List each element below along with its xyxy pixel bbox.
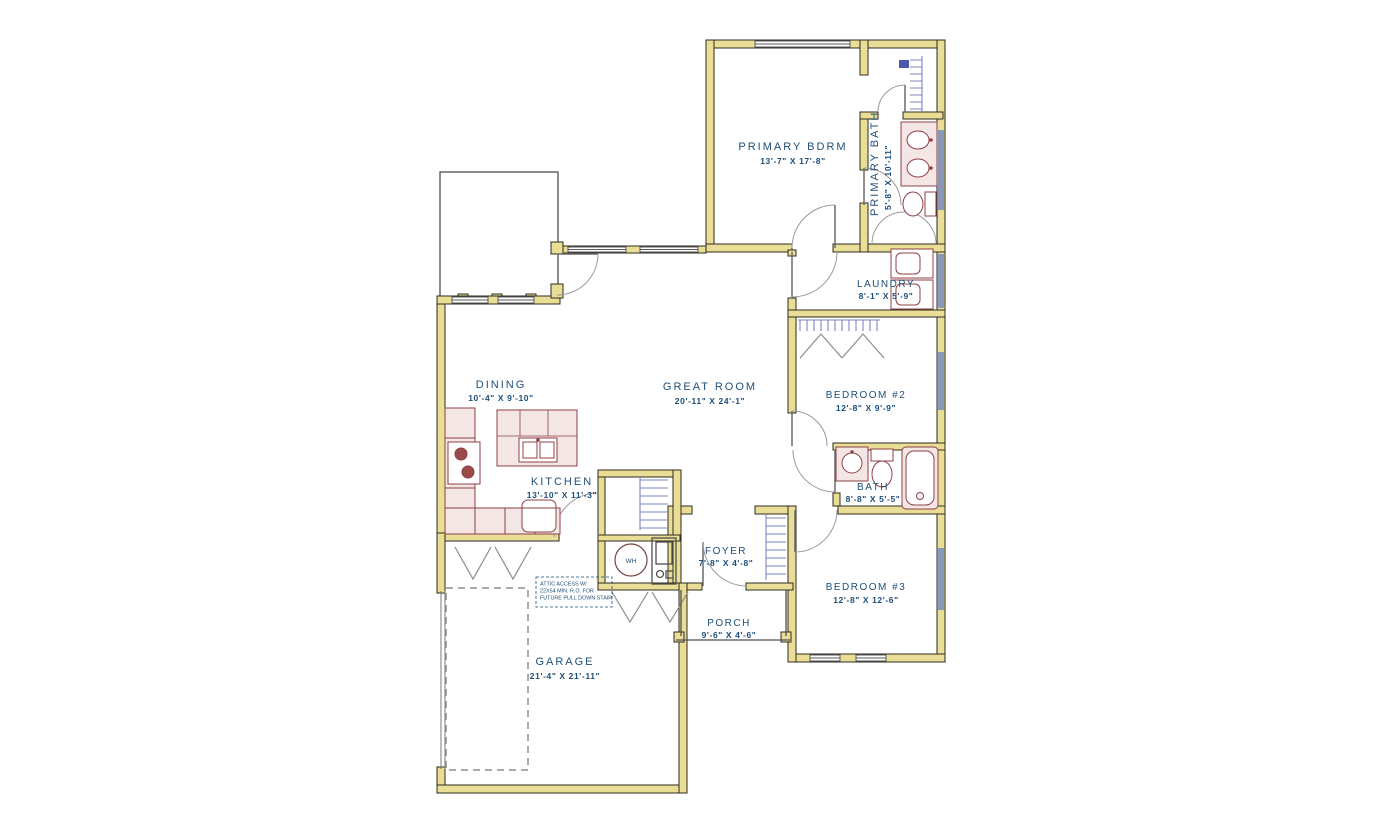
refrigerator <box>522 500 556 532</box>
room-label-foyer: FOYER <box>705 546 747 557</box>
wall-segment <box>860 40 868 75</box>
louvered-door <box>612 592 688 622</box>
room-label-primary-bdrm: PRIMARY BDRM <box>738 141 847 153</box>
wall-segment <box>551 242 563 254</box>
wall-segment <box>746 583 793 590</box>
wall-segment <box>598 470 680 477</box>
tub-drain <box>917 493 924 500</box>
room-label-bedroom2: BEDROOM #2 <box>826 390 907 401</box>
toilet-tank <box>925 192 936 216</box>
room-label-great-room: GREAT ROOM <box>663 381 757 393</box>
overhead-door-track <box>446 588 528 770</box>
door-arc <box>795 510 837 552</box>
faucet <box>929 138 933 142</box>
sink-bowl <box>540 442 554 458</box>
kitchen-fixtures <box>445 408 577 534</box>
burner <box>455 448 467 460</box>
wall-segment <box>437 533 445 593</box>
wall-segment <box>860 112 868 170</box>
door-arc <box>792 411 827 446</box>
room-label-porch: PORCH <box>707 618 751 629</box>
room-dims-porch: 9'-6" X 4'-6" <box>702 630 757 640</box>
room-label-bedroom3: BEDROOM #3 <box>826 582 907 593</box>
wall-segment <box>679 583 687 793</box>
room-label-bath: BATH <box>857 482 889 493</box>
room-dims-great-room: 20'-11" X 24'-1" <box>675 396 745 406</box>
window-band <box>938 352 944 410</box>
door-arc <box>793 450 835 492</box>
water-heater-label: WH <box>626 558 637 565</box>
vanity-sink <box>842 453 862 473</box>
utility-fixtures: WH <box>615 538 676 584</box>
wall-segment <box>788 310 945 317</box>
wall-segment <box>903 112 943 119</box>
room-label-kitchen: KITCHEN <box>531 476 593 488</box>
room-labels: PRIMARY BDRM 13'-7" X 17'-8" PRIMARY BAT… <box>468 111 915 681</box>
room-label-primary-bath: PRIMARY BATH <box>869 111 881 216</box>
door-arc <box>904 212 936 244</box>
toilet-tank <box>871 449 893 461</box>
room-dims-bedroom2: 12'-8" X 9'-9" <box>836 403 896 413</box>
faucet <box>536 438 540 442</box>
room-dims-garage: 21'-4" X 21'-11" <box>530 671 600 681</box>
patio-outline <box>440 172 558 301</box>
room-dims-bedroom3: 12'-8" X 12'-6" <box>833 595 899 605</box>
furnace-control <box>657 571 664 578</box>
room-dims-foyer: 7'-8" X 4'-8" <box>699 558 754 568</box>
faucet <box>929 166 933 170</box>
wall-segment <box>551 284 563 298</box>
toilet-bowl <box>903 192 923 216</box>
sink-bowl <box>523 442 537 458</box>
room-dims-primary-bdrm: 13'-7" X 17'-8" <box>760 156 826 166</box>
attic-hatch-marker <box>899 60 909 68</box>
door-arc <box>878 85 905 112</box>
wic-shelf-ticks <box>910 60 922 109</box>
room-dims-primary-bath: 5'-8" X 10'-11" <box>883 145 893 210</box>
room-label-dining: DINING <box>476 379 527 391</box>
note-line: 22X54 MIN. R.O. FOR <box>540 589 594 595</box>
closet-shelf-ticks <box>766 518 786 574</box>
room-label-garage: GARAGE <box>535 656 594 668</box>
patio-slab <box>440 172 558 298</box>
wall-segment <box>706 40 714 252</box>
wall-segment <box>437 296 445 541</box>
primary-bath-fixtures <box>901 122 937 216</box>
floor-plan-canvas: WH ATTIC ACCESS W/ 22X54 MIN. R.O. FOR F… <box>0 0 1396 826</box>
wall-segment <box>437 785 687 793</box>
wall-segment <box>673 470 681 590</box>
window-band <box>938 130 944 210</box>
door-arc <box>792 205 835 248</box>
faucet <box>850 450 854 454</box>
room-dims-kitchen: 13'-10" X 11'-3" <box>527 490 597 500</box>
closet-shelf-ticks <box>800 320 877 331</box>
burner <box>462 466 474 478</box>
room-dims-bath: 8'-8" X 5'-5" <box>846 494 901 504</box>
room-label-laundry: LAUNDRY <box>857 279 915 290</box>
window-band <box>938 254 944 308</box>
vanity-sink <box>907 131 929 149</box>
wall-segment <box>598 470 605 590</box>
floor-plan-drawing: WH ATTIC ACCESS W/ 22X54 MIN. R.O. FOR F… <box>0 0 1396 826</box>
note-line: FUTURE PULL DOWN STAIR <box>540 596 612 602</box>
door-arc <box>792 252 837 297</box>
note-line: ATTIC ACCESS W/ <box>540 582 587 588</box>
pantry-shelf-ticks <box>640 480 668 528</box>
wall-segment <box>833 493 840 506</box>
vanity-sink <box>907 159 929 177</box>
washer-lid <box>896 253 920 274</box>
room-dims-dining: 10'-4" X 9'-10" <box>468 393 534 403</box>
wall-segment <box>860 203 868 252</box>
bifold-door <box>800 334 884 358</box>
room-dims-laundry: 8'-1" X 5'-9" <box>859 291 914 301</box>
louvered-door <box>455 547 531 579</box>
window-band <box>938 548 944 610</box>
wall-segment <box>706 244 792 252</box>
